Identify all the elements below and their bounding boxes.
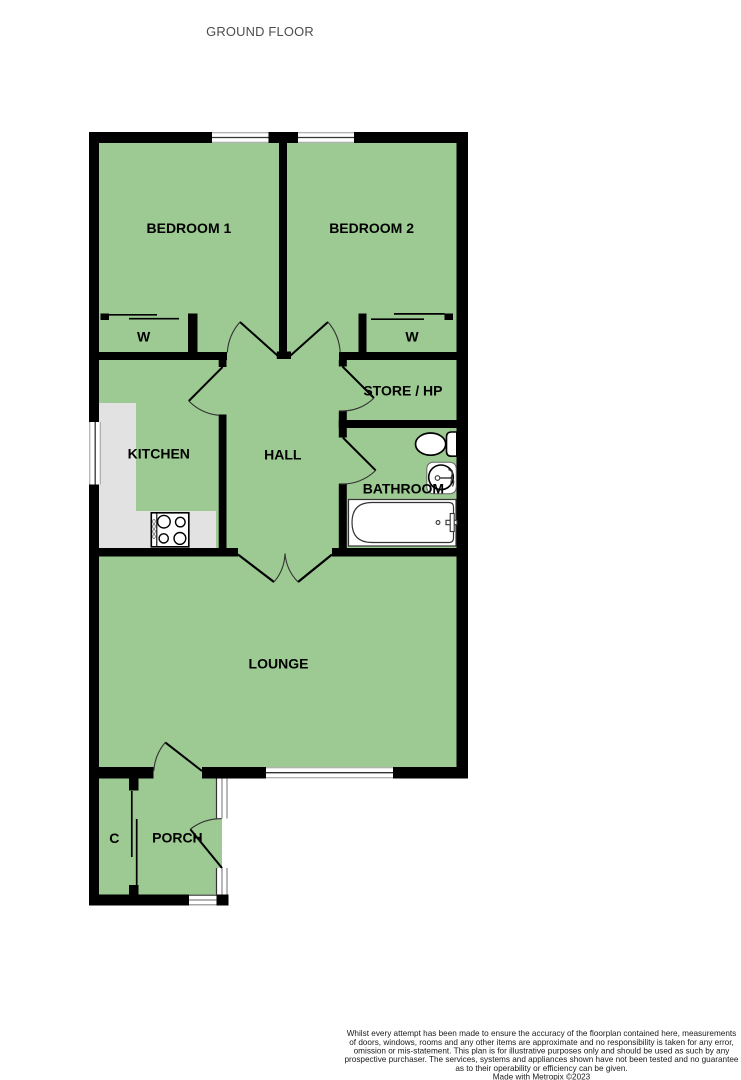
svg-text:STORE / HP: STORE / HP	[363, 383, 442, 399]
svg-text:of doors, windows, rooms and a: of doors, windows, rooms and any other i…	[349, 1038, 734, 1047]
svg-text:HALL: HALL	[264, 446, 302, 462]
svg-text:W: W	[405, 328, 419, 344]
svg-text:BEDROOM 2: BEDROOM 2	[329, 220, 414, 236]
svg-text:C: C	[109, 830, 119, 846]
svg-text:BEDROOM 1: BEDROOM 1	[147, 220, 232, 236]
svg-text:as to their operability or eff: as to their operability or efficiency ca…	[455, 1064, 627, 1073]
svg-text:BATHROOM: BATHROOM	[363, 481, 444, 497]
svg-text:KITCHEN: KITCHEN	[128, 446, 190, 462]
svg-text:omission or mis-statement. Thi: omission or mis-statement. This plan is …	[354, 1047, 731, 1056]
svg-text:LOUNGE: LOUNGE	[249, 656, 309, 672]
svg-text:W: W	[137, 329, 151, 345]
svg-text:GROUND FLOOR: GROUND FLOOR	[206, 24, 314, 39]
svg-text:Made with Metropix ©2023: Made with Metropix ©2023	[493, 1073, 591, 1080]
svg-text:PORCH: PORCH	[152, 829, 203, 845]
